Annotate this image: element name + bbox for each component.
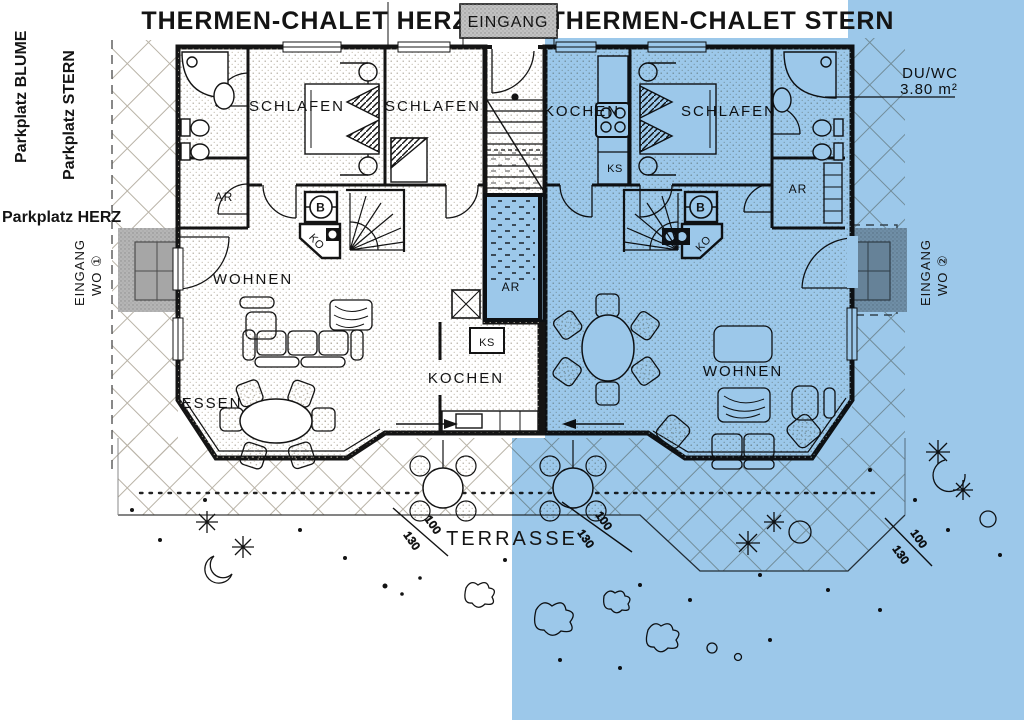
herz-wohnen-label: WOHNEN xyxy=(213,271,293,288)
entrance-wo2-line1: EINGANG xyxy=(918,239,933,306)
shrub xyxy=(465,583,495,608)
titles: THERMEN-CHALET HERZ THERMEN-CHALET STERN… xyxy=(141,4,894,38)
herz-essen-label: ESSEN xyxy=(182,395,243,412)
dim-130-herz: 130 xyxy=(401,530,422,553)
entrance-wo1-label: EINGANG WO ① xyxy=(72,239,104,306)
parkplatz-stern-label: Parkplatz STERN xyxy=(61,50,78,180)
porch-left xyxy=(118,228,180,312)
star-doodle xyxy=(232,536,254,558)
star-doodle xyxy=(196,511,218,533)
herz-ar-label: AR xyxy=(215,190,234,204)
herz-boiler-label: B xyxy=(316,201,326,215)
floor-plan-svg: 100 130 100 130 100 130 xyxy=(0,0,1024,720)
entrance-box-label: EINGANG xyxy=(468,14,549,31)
floor-plan-page: 100 130 100 130 100 130 xyxy=(0,0,1024,720)
herz-schlafen1-label: SCHLAFEN xyxy=(249,98,345,115)
moon-doodle xyxy=(205,556,232,583)
herz-boiler-closet: B xyxy=(305,192,337,222)
title-herz: THERMEN-CHALET HERZ xyxy=(141,7,468,35)
herz-bed-single xyxy=(391,138,427,182)
corridor-door-gap xyxy=(492,41,538,52)
entrance-wo1-line1: EINGANG xyxy=(72,239,87,306)
herz-ks-label: KS xyxy=(479,337,495,349)
entrance-wo2-line2: WO ② xyxy=(935,254,950,296)
corridor-dash-zone xyxy=(489,152,541,192)
entrance-box-top: EINGANG xyxy=(460,4,557,38)
terrasse-label: TERRASSE xyxy=(446,528,578,550)
parkplatz-blume-label: Parkplatz BLUME xyxy=(13,30,30,163)
entrance-wo1-line2: WO ① xyxy=(89,254,104,296)
dim-100-herz: 100 xyxy=(422,514,443,537)
blue-overlay-stern xyxy=(483,0,1024,720)
parkplatz-herz-label: Parkplatz HERZ xyxy=(2,209,121,226)
herz-kochen-label: KOCHEN xyxy=(428,370,504,387)
title-stern: THERMEN-CHALET STERN xyxy=(550,7,895,35)
herz-schlafen2-label: SCHLAFEN xyxy=(385,98,481,115)
